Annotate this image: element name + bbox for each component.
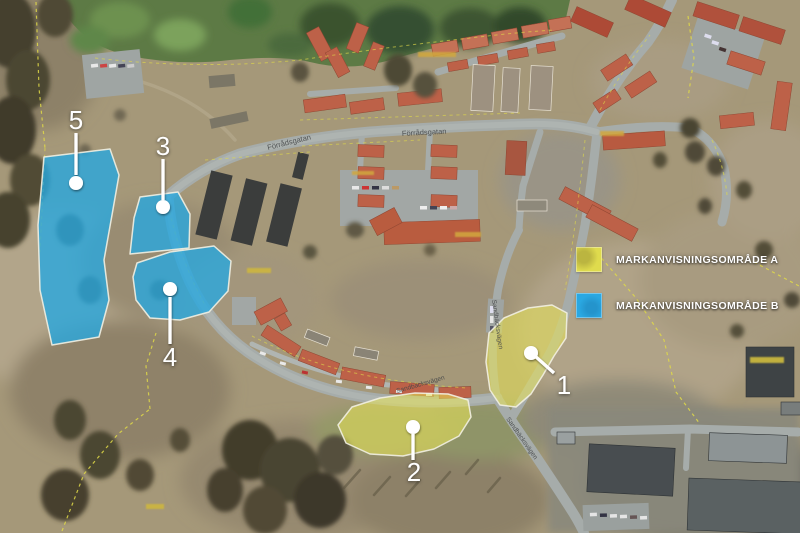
legend-swatch-area-b xyxy=(576,293,602,318)
legend-row-area-b: MARKANVISNINGSOMRÅDE B xyxy=(576,293,779,318)
aerial-map-image: Förrådsgatan Förrådsgatan Sandbäcksvägen… xyxy=(0,0,800,533)
legend-row-area-a: MARKANVISNINGSOMRÅDE A xyxy=(576,247,778,272)
legend-swatch-area-a xyxy=(576,247,602,272)
legend-label-area-a: MARKANVISNINGSOMRÅDE A xyxy=(616,254,778,266)
legend-label-area-b: MARKANVISNINGSOMRÅDE B xyxy=(616,300,779,312)
